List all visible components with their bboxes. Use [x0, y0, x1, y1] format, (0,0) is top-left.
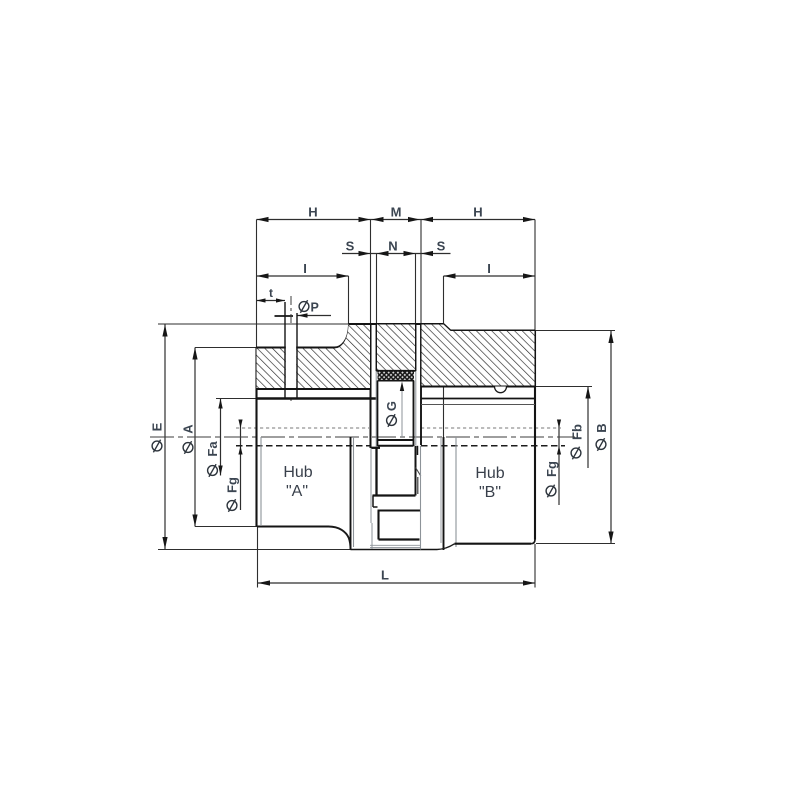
svg-text:I: I [487, 261, 491, 276]
svg-text:"A": "A" [286, 483, 308, 500]
svg-text:L: L [381, 568, 389, 583]
svg-text:N: N [388, 239, 397, 254]
svg-text:M: M [391, 205, 402, 220]
svg-text:"B": "B" [479, 484, 501, 501]
svg-text:A: A [181, 424, 196, 434]
svg-text:Fb: Fb [570, 424, 585, 440]
svg-text:Fg: Fg [544, 461, 559, 477]
svg-text:S: S [437, 239, 446, 254]
svg-text:Hub: Hub [283, 464, 312, 481]
svg-text:H: H [308, 205, 317, 220]
svg-text:B: B [594, 423, 609, 432]
svg-text:t: t [269, 286, 273, 300]
svg-text:I: I [303, 261, 307, 276]
svg-text:Fg: Fg [225, 477, 240, 493]
svg-text:Fa: Fa [205, 441, 220, 457]
svg-text:Hub: Hub [475, 465, 504, 482]
svg-text:E: E [150, 422, 165, 431]
svg-text:S: S [346, 239, 355, 254]
svg-text:H: H [473, 205, 482, 220]
svg-text:P: P [311, 301, 319, 315]
svg-text:G: G [384, 401, 399, 411]
